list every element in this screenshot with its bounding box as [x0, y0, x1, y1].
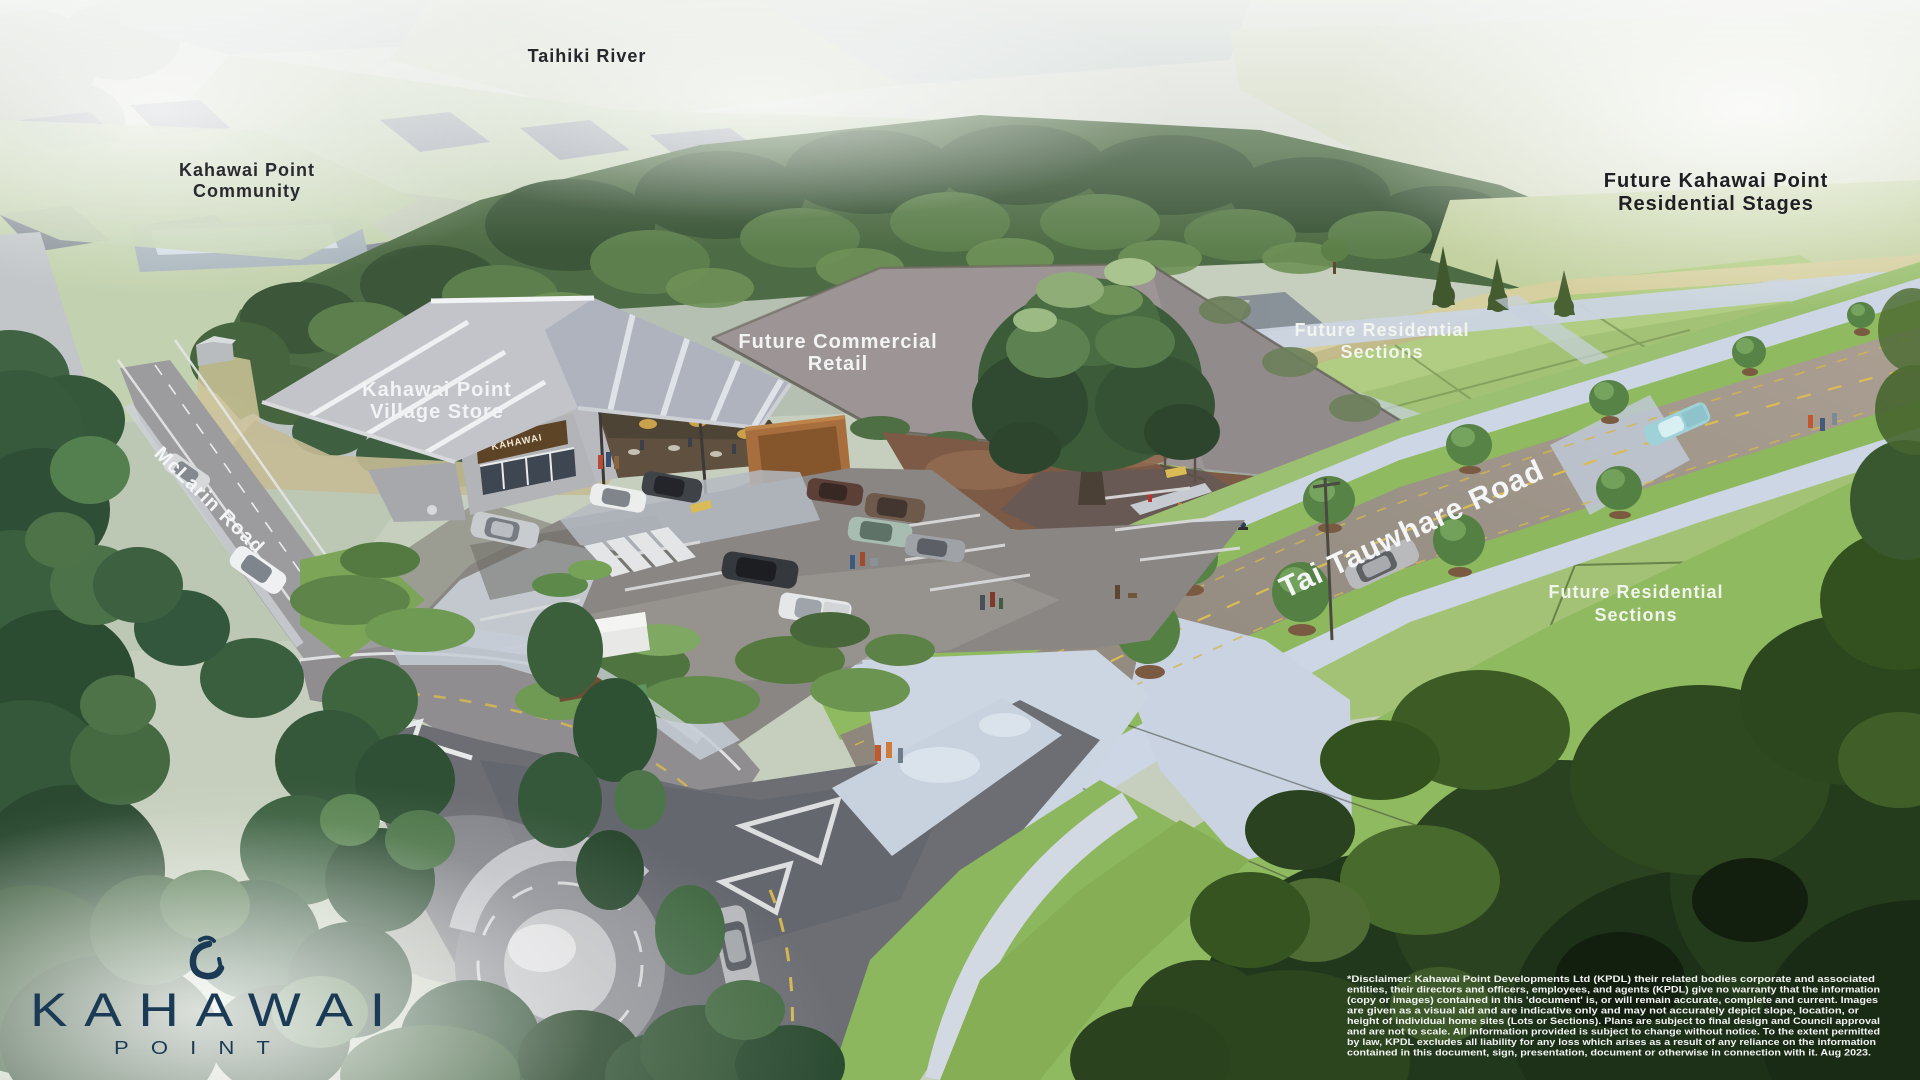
svg-text:Future Residential: Future Residential: [1548, 582, 1723, 602]
svg-text:KAHAWAI: KAHAWAI: [30, 983, 402, 1036]
svg-text:Community: Community: [193, 181, 301, 201]
svg-text:*Disclaimer: Kahawai Point Dev: *Disclaimer: Kahawai Point Developments …: [1347, 974, 1875, 984]
svg-text:height of individual home site: height of individual home sites (Lots or…: [1347, 1016, 1880, 1026]
svg-text:Residential Stages: Residential Stages: [1618, 193, 1814, 215]
svg-text:Retail: Retail: [808, 353, 868, 375]
svg-text:(copy or images) contained in: (copy or images) contained in this 'docu…: [1347, 995, 1878, 1005]
svg-text:by law, KPDL excludes all liab: by law, KPDL excludes all liability for …: [1347, 1037, 1876, 1047]
svg-text:Sections: Sections: [1340, 342, 1423, 362]
svg-text:Future Commercial: Future Commercial: [738, 331, 937, 353]
svg-text:Future Residential: Future Residential: [1294, 320, 1469, 340]
svg-text:Sections: Sections: [1594, 605, 1677, 625]
svg-text:and are not to scale. All info: and are not to scale. All information pr…: [1347, 1027, 1880, 1037]
svg-text:Kahawai Point: Kahawai Point: [179, 160, 315, 180]
svg-text:are given as a visual aid and: are given as a visual aid and are indica…: [1347, 1006, 1859, 1016]
svg-text:POINT: POINT: [114, 1038, 292, 1058]
svg-text:Village Store: Village Store: [370, 401, 504, 423]
svg-text:Kahawai Point: Kahawai Point: [362, 379, 512, 401]
svg-text:contained in this document, si: contained in this document, sign, presen…: [1347, 1048, 1871, 1058]
svg-text:Future Kahawai Point: Future Kahawai Point: [1604, 170, 1828, 192]
svg-text:entities, their directors and: entities, their directors and officers, …: [1347, 985, 1880, 995]
svg-text:Taihiki River: Taihiki River: [528, 46, 647, 66]
